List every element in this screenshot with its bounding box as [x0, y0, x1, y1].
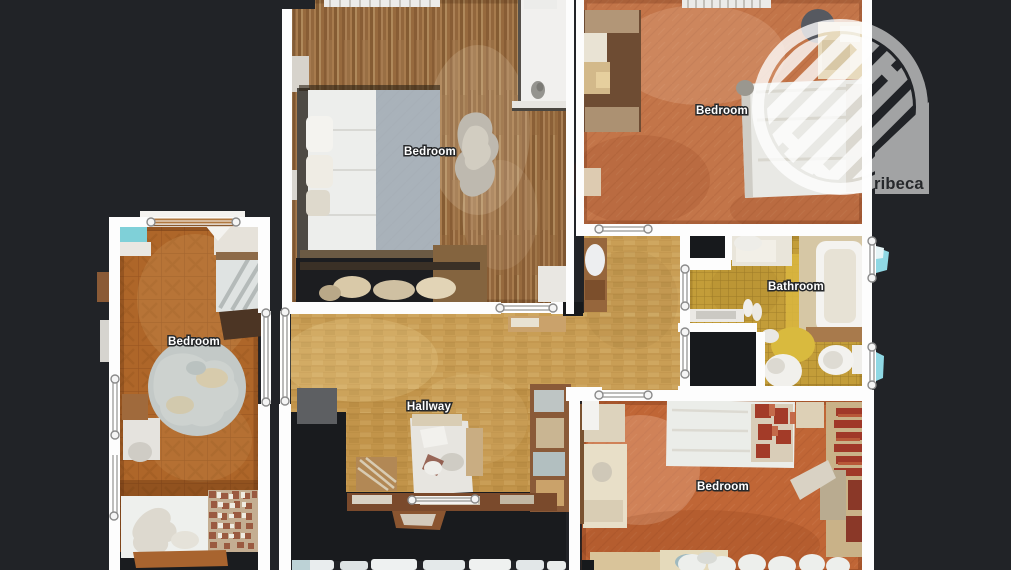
svg-text:Bedroom: Bedroom	[697, 481, 749, 493]
svg-text:Bedroom: Bedroom	[696, 105, 748, 117]
svg-text:Bedroom: Bedroom	[404, 146, 456, 158]
svg-text:ribeca: ribeca	[874, 175, 924, 193]
svg-text:Hallway: Hallway	[407, 401, 452, 413]
svg-text:Bedroom: Bedroom	[168, 336, 220, 348]
svg-text:Bathroom: Bathroom	[768, 281, 824, 293]
